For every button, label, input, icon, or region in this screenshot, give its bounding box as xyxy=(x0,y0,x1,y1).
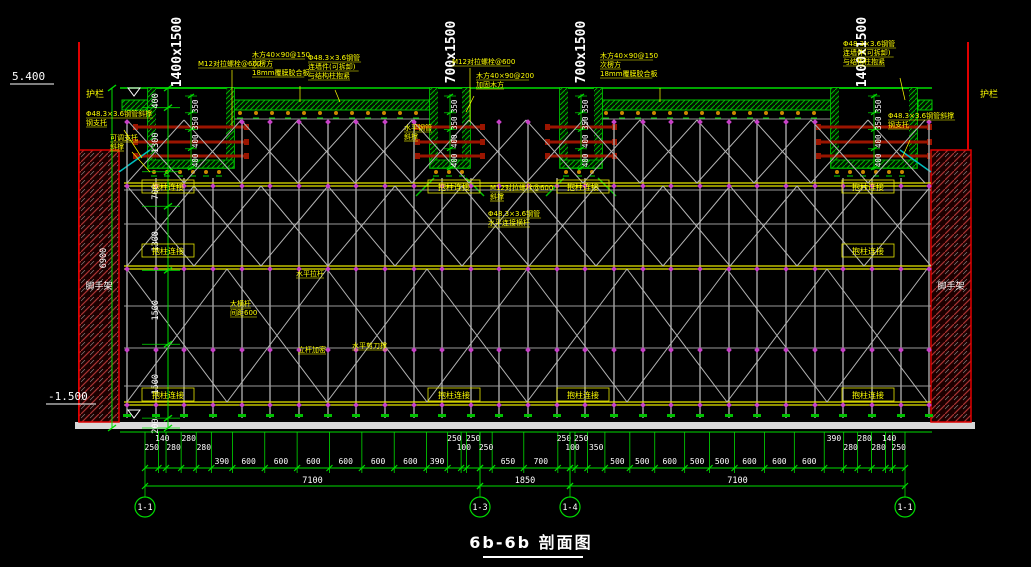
formwork-stud xyxy=(366,111,370,115)
beam-dim-text: 350 xyxy=(450,116,459,130)
coupler-marker xyxy=(840,266,846,272)
coupler-marker xyxy=(726,183,732,189)
dim-text-bottom: 500 xyxy=(635,457,650,466)
axis-label: 1-1 xyxy=(137,503,152,513)
formwork-stud xyxy=(861,170,865,174)
formwork-stud xyxy=(812,111,816,115)
dim-text-bottom: 250 xyxy=(466,434,481,443)
dim-text-left: 400 xyxy=(151,93,161,108)
coupler-marker xyxy=(840,402,846,408)
coupler-marker xyxy=(898,266,904,272)
coupler-marker xyxy=(783,266,789,272)
base-plate xyxy=(839,414,847,417)
formwork-stud xyxy=(238,111,242,115)
coupler-marker xyxy=(210,266,216,272)
coupler-marker xyxy=(812,402,818,408)
coupler-marker xyxy=(468,266,474,272)
formwork-stud xyxy=(318,111,322,115)
dim-text-bottom: 250 xyxy=(574,434,589,443)
base-plate xyxy=(667,414,675,417)
formwork-stud xyxy=(900,170,904,174)
coupler-marker xyxy=(726,402,732,408)
coupler-marker xyxy=(754,266,760,272)
coupler-marker xyxy=(525,402,531,408)
elevation-bottom: -1.500 xyxy=(48,390,88,403)
beam-size-label: 700x1500 xyxy=(574,21,589,84)
base-plate xyxy=(352,414,360,417)
beam-size-label: 700x1500 xyxy=(444,21,459,84)
formwork-stud xyxy=(668,111,672,115)
base-plate xyxy=(553,414,561,417)
annotation-text: 次楞方 xyxy=(252,59,273,68)
coupler-marker xyxy=(325,119,331,125)
formwork-stud xyxy=(700,111,704,115)
coupler-marker xyxy=(496,402,502,408)
dim-text-bottom: 250 xyxy=(145,443,160,452)
scaffold-label: 脚手架 xyxy=(937,280,964,292)
annotation-text: Φ48.3×3.6钢管斜撑 xyxy=(86,109,152,118)
base-plate xyxy=(180,414,188,417)
base-plate xyxy=(897,414,905,417)
tie-plate xyxy=(415,153,420,159)
annotation-text: 加固木方 xyxy=(476,80,504,89)
beam-size-label: 1400x1500 xyxy=(170,17,185,88)
coupler-marker xyxy=(812,266,818,272)
coupler-marker xyxy=(668,183,674,189)
tie-plate xyxy=(244,153,249,159)
formwork-stud xyxy=(270,111,274,115)
coupler-marker xyxy=(382,402,388,408)
column-tie-label: 抱柱连接 xyxy=(567,390,599,400)
beam-dim-text: 350 xyxy=(191,99,200,113)
dim-text-bottom: 140 xyxy=(155,434,170,443)
slab-formwork xyxy=(122,100,148,110)
annotation-text: 18mm覆膜胶合板 xyxy=(600,69,658,78)
annotation-text: 斜撑 xyxy=(404,132,418,141)
coupler-marker xyxy=(496,266,502,272)
base-plate xyxy=(152,414,160,417)
coupler-marker xyxy=(640,119,646,125)
coupler-marker xyxy=(869,402,875,408)
coupler-marker xyxy=(668,402,674,408)
formwork-stud xyxy=(732,111,736,115)
coupler-marker xyxy=(296,402,302,408)
base-plate xyxy=(209,414,217,417)
base-plate xyxy=(753,414,761,417)
coupler-marker xyxy=(267,266,273,272)
coupler-marker xyxy=(411,266,417,272)
coupler-marker xyxy=(869,266,875,272)
axis-label: 1-4 xyxy=(562,503,577,513)
coupler-marker xyxy=(439,402,445,408)
annotation-text: 次楞方 xyxy=(600,60,621,69)
beam-dim-text: 350 xyxy=(874,99,883,113)
beam-dim-text: 400 xyxy=(874,153,883,167)
coupler-marker xyxy=(697,266,703,272)
coupler-marker xyxy=(239,266,245,272)
formwork-stud xyxy=(835,170,839,174)
dim-text-bottom: 280 xyxy=(857,434,872,443)
coupler-marker xyxy=(554,266,560,272)
coupler-marker xyxy=(153,402,159,408)
slab-formwork xyxy=(602,100,831,110)
annotation-text: 斜撑 xyxy=(490,192,504,201)
formwork-stud xyxy=(398,111,402,115)
column-tie-label: 抱柱连接 xyxy=(438,182,470,192)
dim-text-bottom: 100 xyxy=(565,443,580,452)
dim-text-bottom: 500 xyxy=(715,457,730,466)
annotation-text: 水平拉杆 xyxy=(296,269,324,278)
coupler-marker xyxy=(496,119,502,125)
formwork-stud xyxy=(434,170,438,174)
beam-dim-text: 400 xyxy=(450,153,459,167)
formwork-stud xyxy=(796,111,800,115)
elevation-top: 5.400 xyxy=(12,70,45,83)
coupler-marker xyxy=(296,183,302,189)
tie-plate xyxy=(816,153,821,159)
formwork-stud xyxy=(620,111,624,115)
slab-formwork xyxy=(234,100,430,110)
dim-total-text: 7100 xyxy=(302,476,322,486)
formwork-stud xyxy=(302,111,306,115)
coupler-marker xyxy=(382,119,388,125)
formwork-stud xyxy=(604,111,608,115)
formwork-stud xyxy=(577,170,581,174)
coupler-marker xyxy=(640,266,646,272)
annotation-text: 可调支托 xyxy=(110,133,138,142)
annotation-text: Φ48.3×3.6钢管 xyxy=(843,39,895,48)
coupler-marker xyxy=(382,183,388,189)
annotation-text: 木方40×90@150 xyxy=(252,50,310,59)
base-plate xyxy=(581,414,589,417)
base-plate xyxy=(238,414,246,417)
dim-text-overall: 6900 xyxy=(99,248,109,268)
beam-dim-text: 350 xyxy=(874,116,883,130)
coupler-marker xyxy=(181,402,187,408)
beam-dim-text: 400 xyxy=(874,134,883,148)
coupler-marker xyxy=(726,266,732,272)
beam-dim-text: 350 xyxy=(581,99,590,113)
beam-dim-text: 350 xyxy=(450,99,459,113)
coupler-marker xyxy=(325,402,331,408)
annotation-leader xyxy=(900,78,905,100)
base-plate xyxy=(811,414,819,417)
base-plate xyxy=(782,414,790,417)
formwork-stud xyxy=(334,111,338,115)
coupler-marker xyxy=(411,183,417,189)
axis-label: 1-1 xyxy=(897,503,912,513)
dim-text-bottom: 650 xyxy=(501,457,516,466)
annotation-text: 水平连接横杆 xyxy=(488,218,530,227)
tie-plate xyxy=(244,139,249,145)
base-plate xyxy=(410,414,418,417)
dim-total-text: 1850 xyxy=(515,476,535,486)
formwork-stud xyxy=(447,170,451,174)
coupler-marker xyxy=(468,402,474,408)
dim-text-bottom: 700 xyxy=(534,457,549,466)
coupler-marker xyxy=(582,402,588,408)
coupler-marker xyxy=(267,183,273,189)
annotation-text: M12对拉螺栓@600 xyxy=(490,183,553,192)
base-plate xyxy=(266,414,274,417)
dim-text-bottom: 250 xyxy=(447,434,462,443)
coupler-marker xyxy=(611,402,617,408)
tie-plate xyxy=(816,139,821,145)
cad-canvas: 400130070013001500150020069005.400-1.500… xyxy=(0,0,1031,567)
coupler-marker xyxy=(783,119,789,125)
beam-dim-text: 400 xyxy=(581,153,590,167)
elevation-triangle xyxy=(128,88,140,96)
tie-plate xyxy=(480,153,485,159)
annotation-text: 钢支托 xyxy=(86,118,107,127)
guardrail-label: 护栏 xyxy=(980,88,998,100)
dim-text-bottom: 390 xyxy=(430,457,445,466)
annotation-text: 木方40×90@150 xyxy=(600,51,658,60)
dim-text-bottom: 280 xyxy=(181,434,196,443)
base-plate xyxy=(467,414,475,417)
ground-slab xyxy=(75,422,975,429)
coupler-marker xyxy=(181,266,187,272)
dim-text-bottom: 600 xyxy=(306,457,321,466)
base-plate xyxy=(610,414,618,417)
column-tie-label: 抱柱连接 xyxy=(852,390,884,400)
annotation-text: 水平剪刀撑 xyxy=(352,341,387,350)
coupler-marker xyxy=(353,266,359,272)
beam-dim-text: 400 xyxy=(581,134,590,148)
beam-dim-text: 400 xyxy=(191,153,200,167)
coupler-marker xyxy=(411,402,417,408)
coupler-marker xyxy=(726,119,732,125)
coupler-marker xyxy=(783,183,789,189)
dim-text-bottom: 350 xyxy=(589,443,604,452)
annotation-text: 间距600 xyxy=(230,309,257,317)
dim-total-text: 7100 xyxy=(727,476,747,486)
formwork-stud xyxy=(286,111,290,115)
coupler-marker xyxy=(754,119,760,125)
tie-plate xyxy=(480,139,485,145)
formwork-stud xyxy=(636,111,640,115)
base-plate xyxy=(438,414,446,417)
dim-text-bottom: 100 xyxy=(457,443,472,452)
coupler-marker xyxy=(210,183,216,189)
coupler-marker xyxy=(697,402,703,408)
coupler-marker xyxy=(439,266,445,272)
dim-text-bottom: 390 xyxy=(215,457,230,466)
beam-dim-text: 400 xyxy=(450,134,459,148)
dim-text-bottom: 600 xyxy=(371,457,386,466)
dim-text-bottom: 600 xyxy=(241,457,256,466)
coupler-marker xyxy=(783,402,789,408)
formwork-stud xyxy=(414,111,418,115)
coupler-marker xyxy=(640,402,646,408)
coupler-marker xyxy=(812,183,818,189)
coupler-marker xyxy=(697,119,703,125)
base-plate xyxy=(725,414,733,417)
annotation-text: Φ48.3×3.6钢管 xyxy=(488,209,540,218)
coupler-marker xyxy=(267,119,273,125)
formwork-stud xyxy=(780,111,784,115)
dim-text-bottom: 250 xyxy=(479,443,494,452)
dim-text-bottom: 500 xyxy=(610,457,625,466)
coupler-marker xyxy=(153,266,159,272)
formwork-stud xyxy=(564,170,568,174)
annotation-text: 立杆加密 xyxy=(298,345,326,354)
tie-plate xyxy=(244,124,249,130)
column-tie-label: 抱柱连接 xyxy=(152,246,184,256)
coupler-marker xyxy=(668,266,674,272)
dim-text-bottom: 250 xyxy=(557,434,572,443)
tie-plate xyxy=(480,124,485,130)
annotation-text: 木方40×90@200 xyxy=(476,71,534,80)
annotation-text: 大横杆 xyxy=(230,299,251,308)
dim-text-bottom: 600 xyxy=(662,457,677,466)
coupler-marker xyxy=(611,266,617,272)
dim-text-bottom: 280 xyxy=(197,443,212,452)
dim-text-bottom: 280 xyxy=(843,443,858,452)
beam-dim-text: 400 xyxy=(191,134,200,148)
beam-dim-text: 350 xyxy=(581,116,590,130)
base-plate xyxy=(524,414,532,417)
guardrail-label: 护栏 xyxy=(86,88,104,100)
title-underline xyxy=(483,556,583,558)
annotation-text: 水平钢管 xyxy=(404,123,432,132)
formwork-stud xyxy=(716,111,720,115)
dim-text-bottom: 390 xyxy=(827,434,842,443)
dim-text-left: 1500 xyxy=(151,300,161,320)
coupler-marker xyxy=(840,183,846,189)
dim-text-bottom: 600 xyxy=(802,457,817,466)
column-tie-label: 抱柱连接 xyxy=(852,182,884,192)
coupler-marker xyxy=(239,183,245,189)
base-plate xyxy=(696,414,704,417)
column-tie-label: 抱柱连接 xyxy=(152,390,184,400)
formwork-stud xyxy=(217,170,221,174)
formwork-stud xyxy=(254,111,258,115)
annotation-text: M12对拉螺栓@600 xyxy=(452,57,515,66)
base-plate xyxy=(324,414,332,417)
formwork-stud xyxy=(748,111,752,115)
dim-text-left: 1300 xyxy=(151,132,161,152)
annotation-text: 18mm覆膜胶合板 xyxy=(252,68,310,77)
annotation-text: Φ48.3×3.6钢管斜撑 xyxy=(888,111,954,120)
annotation-text: Φ48.3×3.6钢管 xyxy=(308,53,360,62)
formwork-stud xyxy=(652,111,656,115)
dim-text-bottom: 280 xyxy=(166,443,181,452)
dim-text-bottom: 600 xyxy=(403,457,418,466)
dim-text-bottom: 600 xyxy=(742,457,757,466)
coupler-marker xyxy=(754,402,760,408)
formwork-stud xyxy=(887,170,891,174)
column-tie-label: 抱柱连接 xyxy=(567,182,599,192)
base-plate xyxy=(639,414,647,417)
beam-dim-text: 350 xyxy=(191,116,200,130)
coupler-marker xyxy=(124,402,130,408)
dim-text-bottom: 600 xyxy=(338,457,353,466)
base-plate xyxy=(495,414,503,417)
dim-text-left: 200 xyxy=(151,418,161,433)
coupler-marker xyxy=(898,183,904,189)
base-plate xyxy=(925,414,933,417)
annotation-text: 与结构柱抱紧 xyxy=(308,71,350,80)
section-drawing: 400130070013001500150020069005.400-1.500… xyxy=(0,0,1031,567)
coupler-marker xyxy=(210,402,216,408)
base-plate xyxy=(123,414,131,417)
dim-text-bottom: 600 xyxy=(274,457,289,466)
coupler-marker xyxy=(382,266,388,272)
base-plate xyxy=(295,414,303,417)
drawing-title: 6b-6b 剖面图 xyxy=(446,529,616,553)
coupler-marker xyxy=(239,402,245,408)
formwork-stud xyxy=(382,111,386,115)
axis-label: 1-3 xyxy=(472,503,487,513)
coupler-marker xyxy=(353,402,359,408)
tie-plate xyxy=(545,153,550,159)
annotation-text: 连墙件(可拆卸) xyxy=(308,62,356,71)
formwork-stud xyxy=(204,170,208,174)
dim-text-bottom: 140 xyxy=(882,434,897,443)
dim-text-bottom: 500 xyxy=(690,457,705,466)
base-plate xyxy=(868,414,876,417)
coupler-marker xyxy=(754,183,760,189)
dim-text-bottom: 280 xyxy=(871,443,886,452)
coupler-marker xyxy=(582,266,588,272)
coupler-marker xyxy=(697,183,703,189)
column-tie-label: 抱柱连接 xyxy=(852,246,884,256)
annotation-text: 钢支托 xyxy=(888,120,909,129)
formwork-stud xyxy=(848,170,852,174)
dim-text-bottom: 600 xyxy=(772,457,787,466)
slab-formwork xyxy=(918,100,932,110)
annotation-text: 连墙件(可拆卸) xyxy=(843,48,891,57)
base-plate xyxy=(381,414,389,417)
coupler-marker xyxy=(611,119,617,125)
coupler-marker xyxy=(668,119,674,125)
coupler-marker xyxy=(124,119,130,125)
coupler-marker xyxy=(353,183,359,189)
formwork-stud xyxy=(684,111,688,115)
scaffold-label: 脚手架 xyxy=(85,280,112,292)
coupler-marker xyxy=(898,402,904,408)
annotation-text: 斜撑 xyxy=(110,142,124,151)
dim-text-bottom: 250 xyxy=(892,443,907,452)
column-tie-label: 抱柱连接 xyxy=(152,182,184,192)
coupler-marker xyxy=(640,183,646,189)
coupler-marker xyxy=(611,183,617,189)
annotation-text: 与结构柱抱紧 xyxy=(843,57,885,66)
tie-plate xyxy=(545,124,550,130)
formwork-stud xyxy=(350,111,354,115)
column-tie-label: 抱柱连接 xyxy=(438,390,470,400)
coupler-marker xyxy=(267,402,273,408)
coupler-marker xyxy=(554,402,560,408)
formwork-stud xyxy=(764,111,768,115)
coupler-marker xyxy=(812,119,818,125)
